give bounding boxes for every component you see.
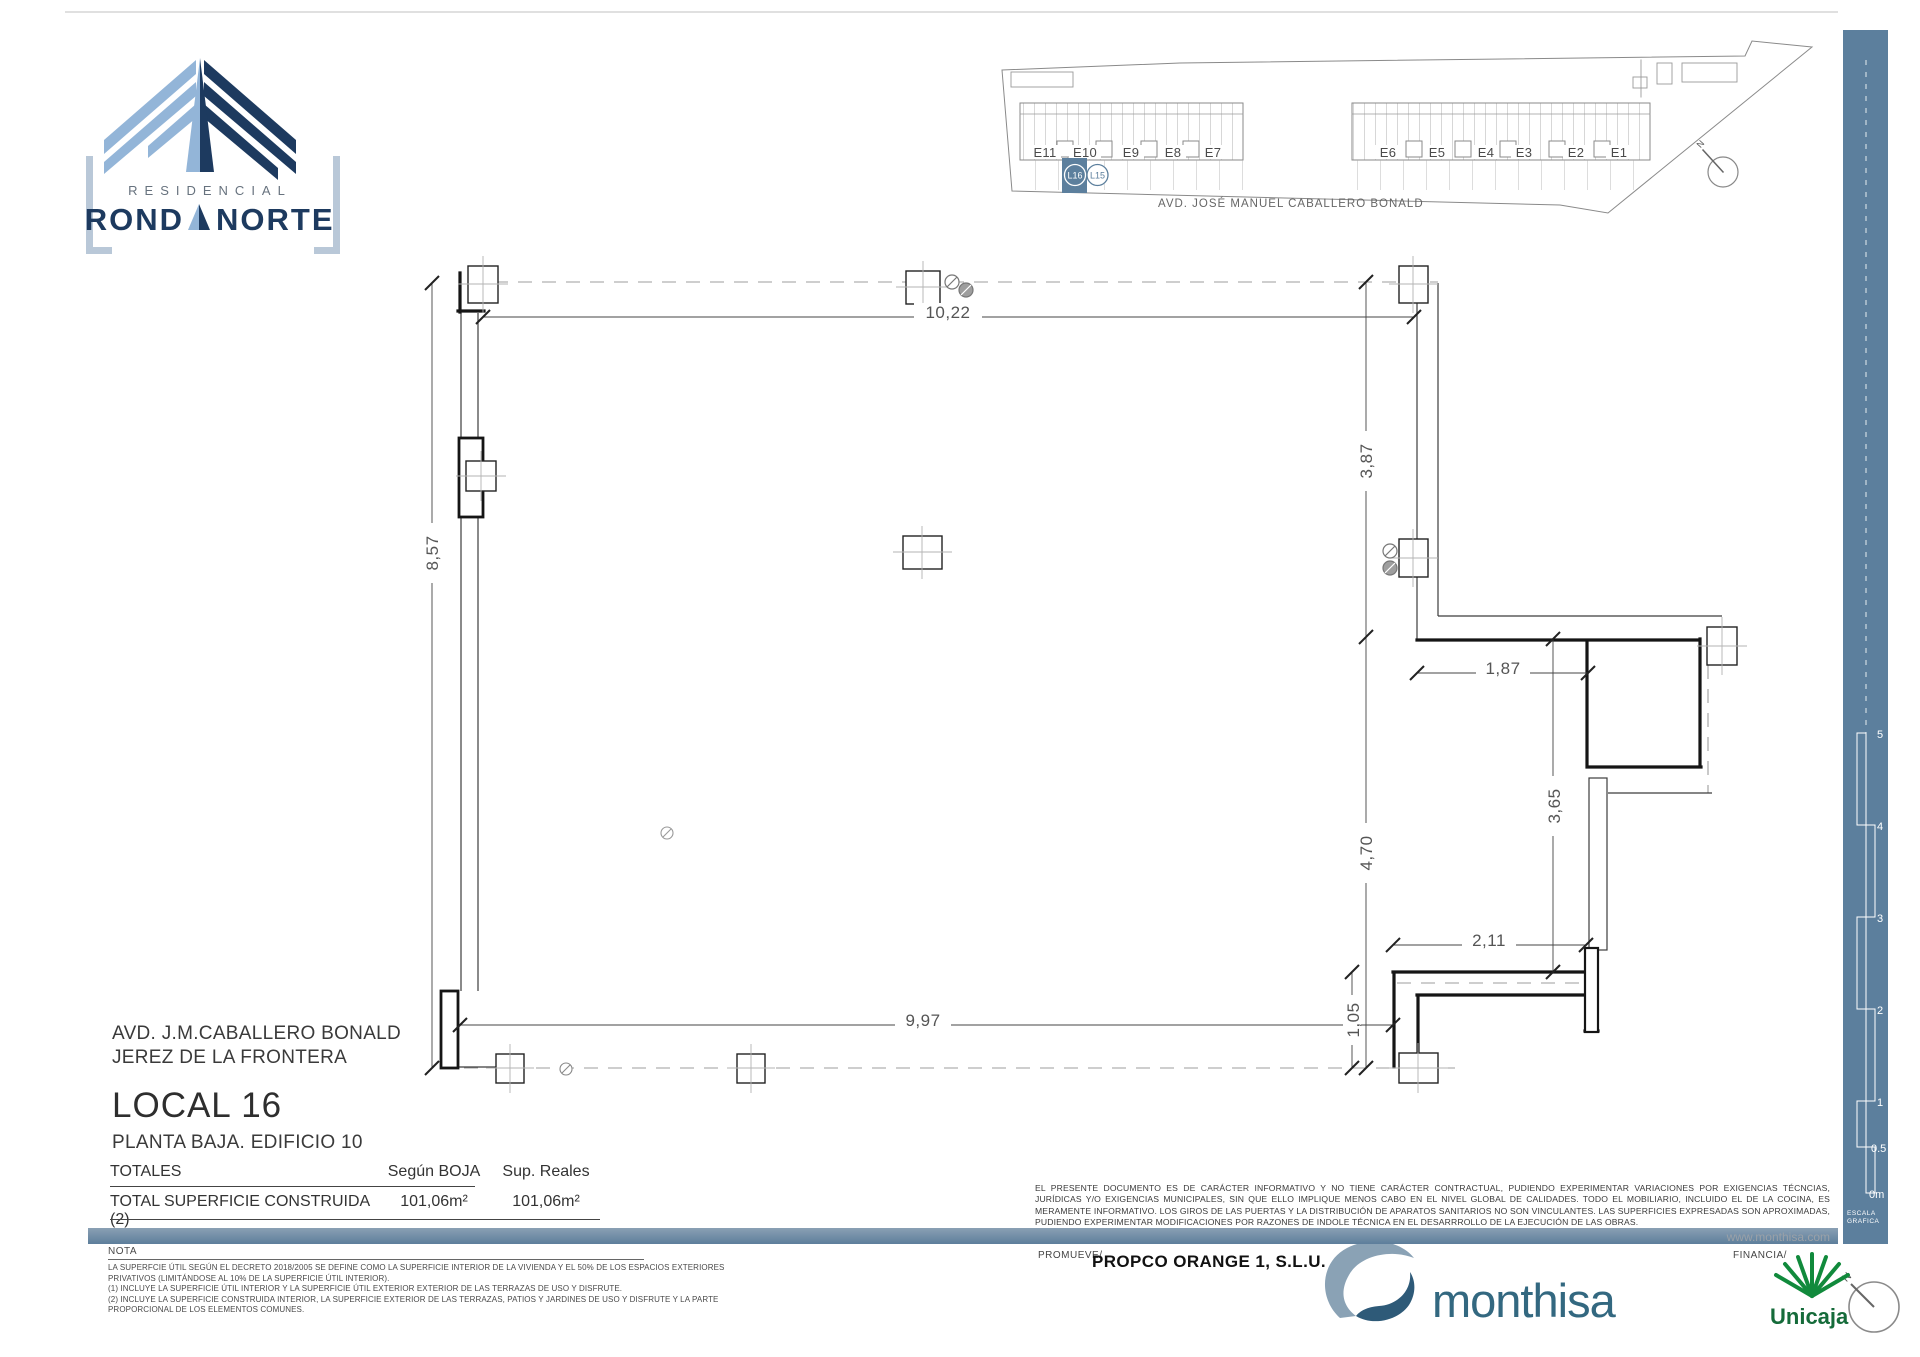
nota-line: LA SUPERFCIE ÚTIL SEGÚN EL DECRETO 2018/… (108, 1263, 653, 1274)
scale-mark: 5 (1877, 729, 1883, 741)
dim-terrace-width: 1,87 (1485, 659, 1520, 678)
site-north-compass-icon: N (1695, 138, 1738, 187)
building-label-e3: E3 (1516, 145, 1533, 160)
column (458, 256, 508, 313)
site-avenue-label: AVD. JOSÉ MANUEL CABALLERO BONALD (1158, 197, 1424, 210)
building-label-e1: E1 (1611, 145, 1628, 160)
dim-step-width: 2,11 (1472, 931, 1506, 950)
building-label-e6: E6 (1380, 145, 1397, 160)
table-rule (110, 1186, 475, 1187)
logo-name-left: ROND (85, 202, 184, 237)
column (1389, 256, 1438, 313)
nota-line: (2) INCLUYE LA SUPERFICIE CONSTRUIDA INT… (108, 1295, 653, 1306)
ronda-norte-logo: RESIDENCIAL ROND NORTE (85, 58, 340, 254)
svg-text:L16: L16 (1067, 171, 1082, 181)
building-label-e5: E5 (1429, 145, 1446, 160)
svg-text:N: N (1695, 138, 1707, 150)
legal-text: EL PRESENTE DOCUMENTO ES DE CARÁCTER INF… (1035, 1183, 1830, 1229)
title-block: AVD. J.M.CABALLERO BONALD JEREZ DE LA FR… (112, 1022, 401, 1154)
scale-mark: 0m (1869, 1189, 1884, 1201)
dim-terrace-height: 3,65 (1545, 788, 1564, 823)
nota-rule (108, 1259, 644, 1260)
building-label-e7: E7 (1205, 145, 1222, 160)
vent-symbol-icon (959, 283, 973, 297)
vent-symbol-icon (560, 1063, 572, 1075)
service-symbols (560, 275, 1397, 1075)
local16-badge: L16 (1062, 158, 1087, 193)
totals-header: TOTALES (110, 1163, 378, 1181)
logo-triangle-icon (188, 204, 199, 230)
building-label-e4: E4 (1478, 145, 1495, 160)
totals-table: TOTALES Según BOJA Sup. Reales TOTAL SUP… (110, 1163, 602, 1217)
dim-right-upper: 3,87 (1357, 443, 1376, 478)
financia-label: FINANCIA/ (1733, 1250, 1787, 1261)
scale-mark: 4 (1877, 821, 1883, 833)
walls-thin (445, 283, 1722, 1067)
monthisa-logo: monthisa (1325, 1241, 1617, 1327)
table-rule (110, 1219, 600, 1220)
scale-mark: 2 (1877, 1005, 1883, 1017)
totals-boja-value: 101,06m² (378, 1193, 490, 1211)
column (893, 526, 952, 579)
scale-mark: 1 (1877, 1097, 1883, 1109)
nota-line: PROPORCIONAL DE LOS ELEMENTOS COMUNES. (108, 1305, 653, 1316)
vent-symbol-icon (661, 827, 673, 839)
totals-header-row: TOTALES Según BOJA Sup. Reales (110, 1163, 602, 1187)
nota-line: (1) INCLUYE LA SUPERFICIE ÚTIL INTERIOR … (108, 1284, 653, 1295)
promoter-name: PROPCO ORANGE 1, S.L.U. (1092, 1252, 1326, 1272)
dimension-ticks (425, 275, 1595, 1075)
address-line1: AVD. J.M.CABALLERO BONALD (112, 1022, 401, 1046)
monthisa-wordmark: monthisa (1432, 1274, 1617, 1327)
building-label-e8: E8 (1165, 145, 1182, 160)
vent-symbol-icon (1383, 561, 1397, 575)
dim-right-lower: 4,70 (1357, 835, 1376, 870)
nota-line: PRIVATIVOS (LIMITÁNDOSE AL 10% DE LA SUP… (108, 1274, 653, 1285)
logo-name-right: NORTE (216, 202, 335, 237)
dim-bottom-inset: 1,05 (1344, 1002, 1363, 1037)
building-label-e11: E11 (1033, 145, 1056, 160)
logo-residencial: RESIDENCIAL (128, 183, 292, 198)
dim-left: 8,57 (423, 535, 442, 570)
legal-block: EL PRESENTE DOCUMENTO ES DE CARÁCTER INF… (1035, 1183, 1830, 1244)
unicaja-wordmark: Unicaja (1770, 1304, 1849, 1329)
totals-data-row: TOTAL SUPERFICIE CONSTRUIDA (2) 101,06m²… (110, 1193, 602, 1217)
totals-row-label: TOTAL SUPERFICIE CONSTRUIDA (2) (110, 1193, 378, 1229)
north-compass-icon: N (1840, 1270, 1899, 1332)
vent-symbol-icon (945, 275, 959, 289)
dim-top: 10,22 (925, 303, 970, 322)
vent-symbol-icon (1383, 544, 1397, 558)
scale-mark: 3 (1877, 913, 1883, 925)
column (1697, 617, 1747, 675)
local15-badge: L15 (1087, 165, 1108, 186)
nota-label: NOTA (108, 1246, 653, 1257)
building-label-e10: E10 (1073, 145, 1097, 160)
scale-mark: 0.5 (1871, 1143, 1886, 1155)
page-title: LOCAL 16 (112, 1086, 401, 1126)
unicaja-logo: Unicaja (1770, 1254, 1849, 1329)
column (1389, 529, 1438, 587)
totals-col-boja: Según BOJA (378, 1163, 490, 1181)
totals-reales-value: 101,06m² (490, 1193, 602, 1211)
site-plan: E11 E10 E9 E8 E7 E6 E5 E4 E3 E2 E1 L16 L… (1002, 41, 1812, 213)
address-line2: JEREZ DE LA FRONTERA (112, 1046, 401, 1070)
nota-block: NOTA LA SUPERFCIE ÚTIL SEGÚN EL DECRETO … (108, 1246, 653, 1316)
floor-plan: 10,22 8,57 3,87 4,70 1,05 9,97 1,87 3,65… (423, 256, 1747, 1093)
dimension-labels: 10,22 8,57 3,87 4,70 1,05 9,97 1,87 3,65… (423, 303, 1564, 1045)
page-subtitle: PLANTA BAJA. EDIFICIO 10 (112, 1132, 401, 1154)
plan-sheet: RESIDENCIAL ROND NORTE E11 E10 (0, 0, 1920, 1357)
dim-bottom: 9,97 (905, 1011, 940, 1030)
graphic-scale-sidebar: 5 4 3 2 1 0.5 0m ESCALA GRAFICA (1843, 30, 1888, 1244)
svg-text:L15: L15 (1090, 171, 1105, 181)
website-url: www.monthisa.com (1035, 1230, 1830, 1244)
building-label-e9: E9 (1123, 145, 1140, 160)
scale-caption: ESCALA (1847, 1210, 1876, 1217)
building-label-e2: E2 (1568, 145, 1585, 160)
totals-col-reales: Sup. Reales (490, 1163, 602, 1181)
scale-caption: GRAFICA (1847, 1218, 1880, 1225)
